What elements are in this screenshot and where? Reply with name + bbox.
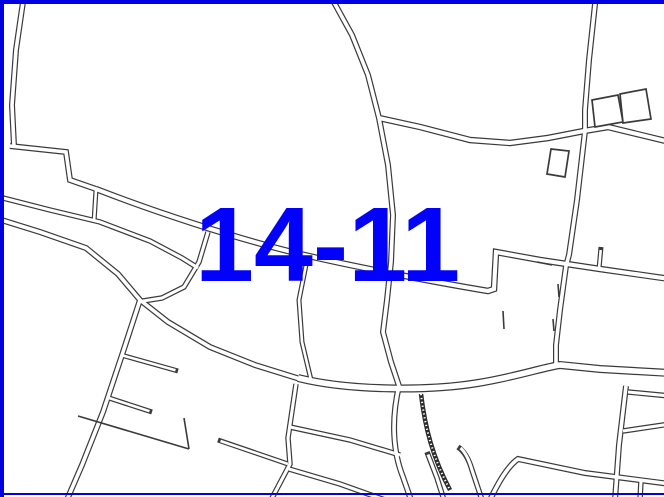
map-frame-bottom <box>0 493 664 495</box>
building-2 <box>620 89 651 123</box>
tick-2 <box>558 284 559 297</box>
map-frame-left <box>0 0 4 497</box>
road-stub-nw-fill <box>221 441 289 464</box>
road-stub-ne-1-fill <box>121 355 176 370</box>
building-1 <box>592 95 623 127</box>
road-step <box>10 146 96 189</box>
parcel-line-vertical <box>184 418 189 449</box>
road-ew-main-fill <box>298 365 664 388</box>
road-sw-diagonal-fill <box>66 300 140 497</box>
tick-1 <box>503 311 504 329</box>
tick-3 <box>553 319 554 331</box>
road-stub-ne-2-fill <box>109 398 150 411</box>
road-stub-north-fill <box>599 250 601 269</box>
building-3 <box>547 149 569 177</box>
map-sheet: 14-11 <box>0 0 664 497</box>
sheet-number-label: 14-11 <box>195 192 460 298</box>
map-frame-top <box>0 0 664 4</box>
